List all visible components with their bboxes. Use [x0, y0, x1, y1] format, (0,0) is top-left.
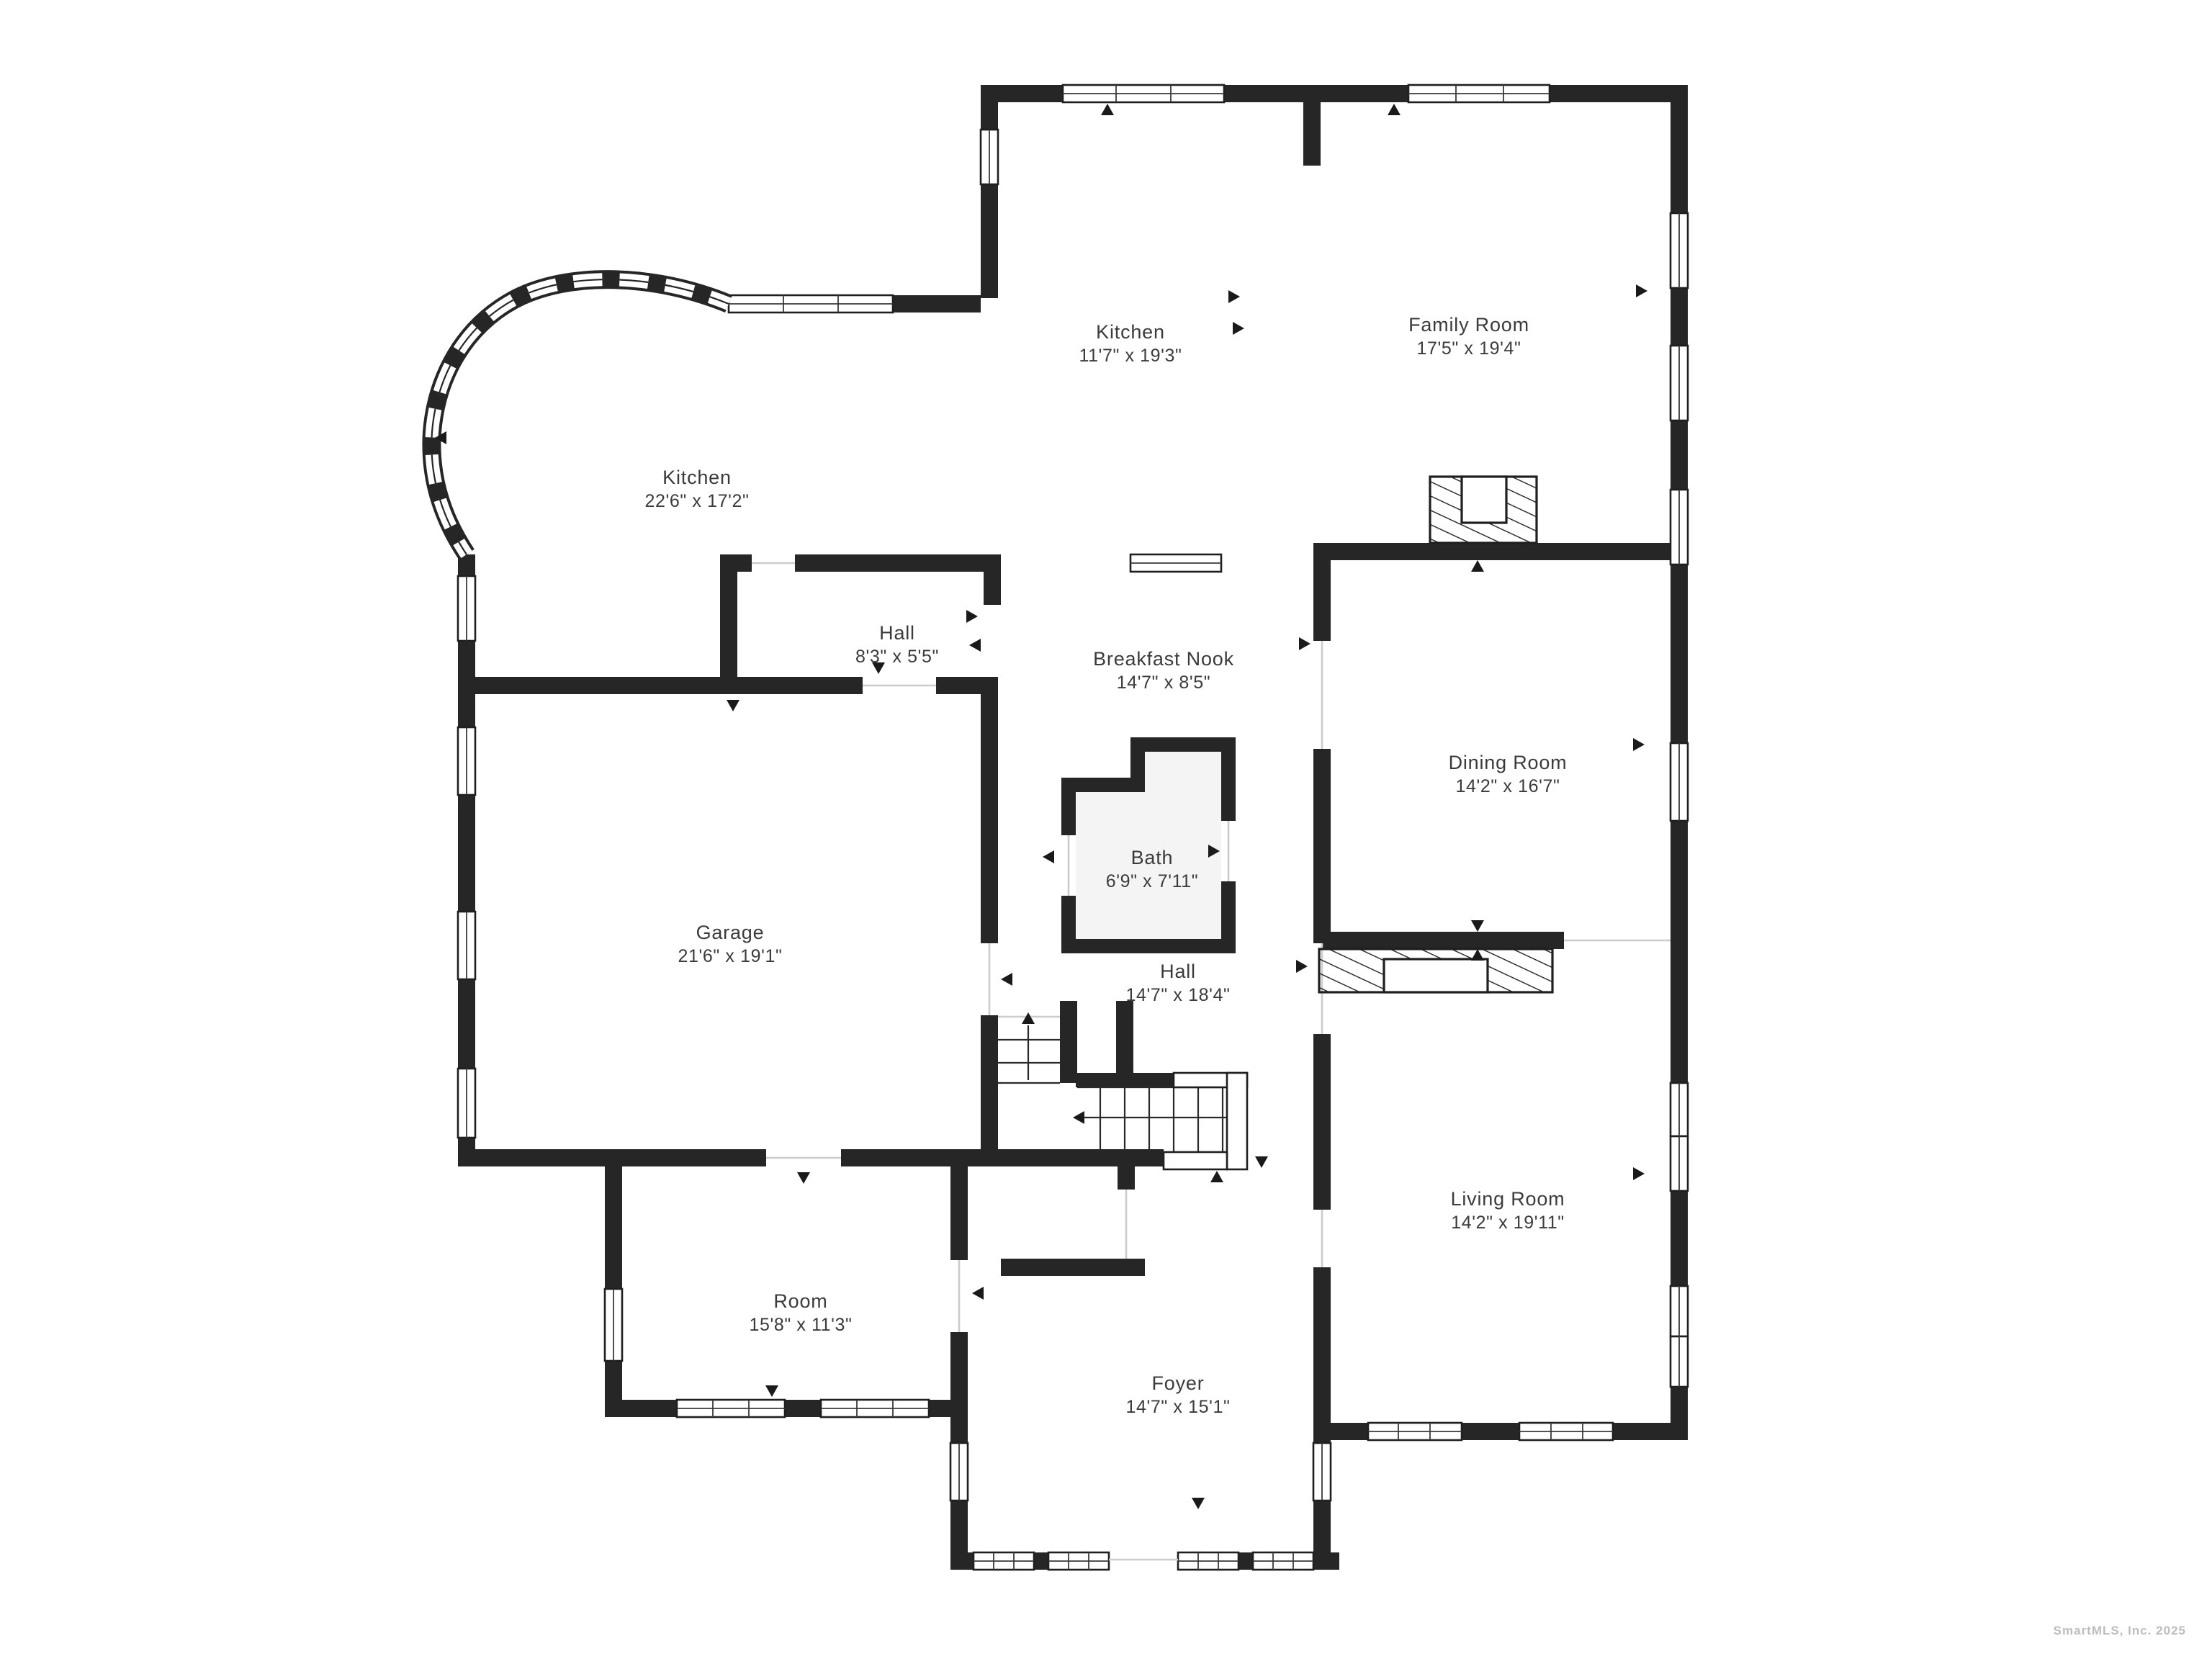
window-foyer-bottom-3 — [1178, 1552, 1238, 1570]
fireplace-living-room — [1319, 949, 1552, 992]
arrow-up — [1101, 104, 1114, 115]
arrow-left — [1001, 973, 1012, 986]
arrow-right — [1636, 284, 1647, 297]
room-name: Family Room — [1408, 314, 1529, 336]
window-living-bottom-1 — [1368, 1423, 1462, 1440]
room-label-living-room: Living Room 14'2" x 19'11" — [1451, 1188, 1565, 1233]
room-label-hall-large: Hall 14'7" x 18'4" — [1126, 961, 1231, 1005]
window-garage-2 — [458, 912, 475, 979]
kitchen-counter — [1130, 554, 1221, 572]
room-name: Foyer — [1151, 1372, 1204, 1394]
room-dims: 8'3" x 5'5" — [855, 647, 939, 667]
room-name: Hall — [879, 622, 915, 644]
stair-landing-bottom — [1164, 1152, 1227, 1169]
window-upper-left — [981, 130, 998, 184]
room-name: Room — [773, 1290, 827, 1312]
room-dims: 14'7" x 15'1" — [1126, 1397, 1231, 1417]
room-name: Living Room — [1451, 1188, 1565, 1210]
room-label-breakfast-nook: Breakfast Nook 14'7" x 8'5" — [1093, 648, 1234, 693]
arrow-left — [972, 1287, 984, 1300]
room-dims: 15'8" x 11'3" — [749, 1315, 852, 1335]
window-top-2 — [1408, 85, 1550, 102]
room-name: Garage — [696, 922, 765, 943]
room-name: Kitchen — [662, 467, 732, 488]
window-foyer-bottom-2 — [1048, 1552, 1109, 1570]
arrow-right — [1633, 738, 1645, 751]
room-label-garage: Garage 21'6" x 19'1" — [678, 922, 783, 966]
stair-landing-right — [1227, 1073, 1247, 1169]
room-dims: 11'7" x 19'3" — [1079, 346, 1182, 366]
bay-window — [431, 279, 729, 554]
arrow-up — [1210, 1171, 1223, 1182]
floor-plan: Kitchen 11'7" x 19'3" Family Room 17'5" … — [0, 0, 2212, 1659]
arrow-down — [1471, 920, 1484, 932]
window-right-2 — [1671, 346, 1688, 421]
room-name: Bath — [1131, 847, 1174, 868]
room-name: Dining Room — [1449, 752, 1568, 773]
window-room-bottom-2 — [821, 1400, 929, 1417]
window-foyer-left — [950, 1443, 968, 1501]
window-foyer-right — [1313, 1443, 1331, 1501]
arrow-up — [1471, 560, 1484, 572]
window-foyer-bottom-4 — [1253, 1552, 1313, 1570]
room-dims: 14'2" x 16'7" — [1456, 776, 1560, 796]
room-dims: 14'7" x 8'5" — [1117, 673, 1210, 693]
window-right-3 — [1671, 490, 1688, 565]
arrow-left — [969, 639, 981, 652]
window-right-1 — [1671, 213, 1688, 288]
arrow-down — [797, 1172, 810, 1184]
arrow-left — [1073, 1111, 1084, 1124]
arrow-down — [727, 700, 739, 711]
window-living-bottom-2 — [1519, 1423, 1613, 1440]
room-label-room: Room 15'8" x 11'3" — [749, 1290, 852, 1335]
arrow-down — [1192, 1498, 1205, 1509]
window-garage-1 — [458, 727, 475, 795]
window-right-4 — [1671, 743, 1688, 821]
window-room-bottom-1 — [677, 1400, 785, 1417]
watermark: SmartMLS, Inc. 2025 — [2054, 1624, 2186, 1637]
room-dims: 17'5" x 19'4" — [1417, 338, 1521, 359]
arrow-down — [765, 1385, 778, 1397]
window-right-5 — [1671, 1083, 1688, 1191]
arrow-right — [1299, 637, 1310, 650]
room-dims: 14'2" x 19'11" — [1451, 1213, 1565, 1233]
arrow-right — [1633, 1167, 1645, 1180]
room-label-foyer: Foyer 14'7" x 15'1" — [1126, 1372, 1231, 1417]
fireplace-family-room — [1430, 477, 1537, 543]
window-kitchen-top — [729, 295, 893, 313]
room-name: Hall — [1160, 961, 1196, 982]
arrow-right — [1296, 960, 1308, 973]
room-dims: 6'9" x 7'11" — [1106, 871, 1199, 891]
room-dims: 21'6" x 19'1" — [678, 946, 783, 966]
room-label-kitchen-upper: Kitchen 11'7" x 19'3" — [1079, 321, 1182, 366]
room-label-dining-room: Dining Room 14'2" x 16'7" — [1449, 752, 1568, 796]
window-right-6 — [1671, 1286, 1688, 1387]
window-foyer-bottom-1 — [974, 1552, 1034, 1570]
arrow-down — [1255, 1156, 1268, 1168]
room-name: Kitchen — [1096, 321, 1165, 343]
window-room-left — [605, 1289, 622, 1361]
window-top-1 — [1063, 85, 1224, 102]
floor-plan-page: { "plan": { "rooms": [ {"name": "Kitchen… — [0, 0, 2212, 1659]
room-label-kitchen-left: Kitchen 22'6" x 17'2" — [645, 467, 750, 511]
window-kitchen-left — [458, 576, 475, 641]
room-dims: 14'7" x 18'4" — [1126, 985, 1231, 1005]
room-label-hall-small: Hall 8'3" x 5'5" — [855, 622, 939, 667]
window-garage-3 — [458, 1069, 475, 1138]
room-label-family-room: Family Room 17'5" x 19'4" — [1408, 314, 1529, 359]
room-name: Breakfast Nook — [1093, 648, 1234, 670]
arrow-up — [1022, 1012, 1035, 1024]
arrow-up — [1388, 104, 1401, 115]
arrow-right — [1228, 290, 1240, 303]
arrow-right — [966, 610, 978, 623]
arrow-left — [1043, 850, 1054, 863]
arrow-right — [1233, 322, 1244, 335]
room-dims: 22'6" x 17'2" — [645, 491, 750, 511]
